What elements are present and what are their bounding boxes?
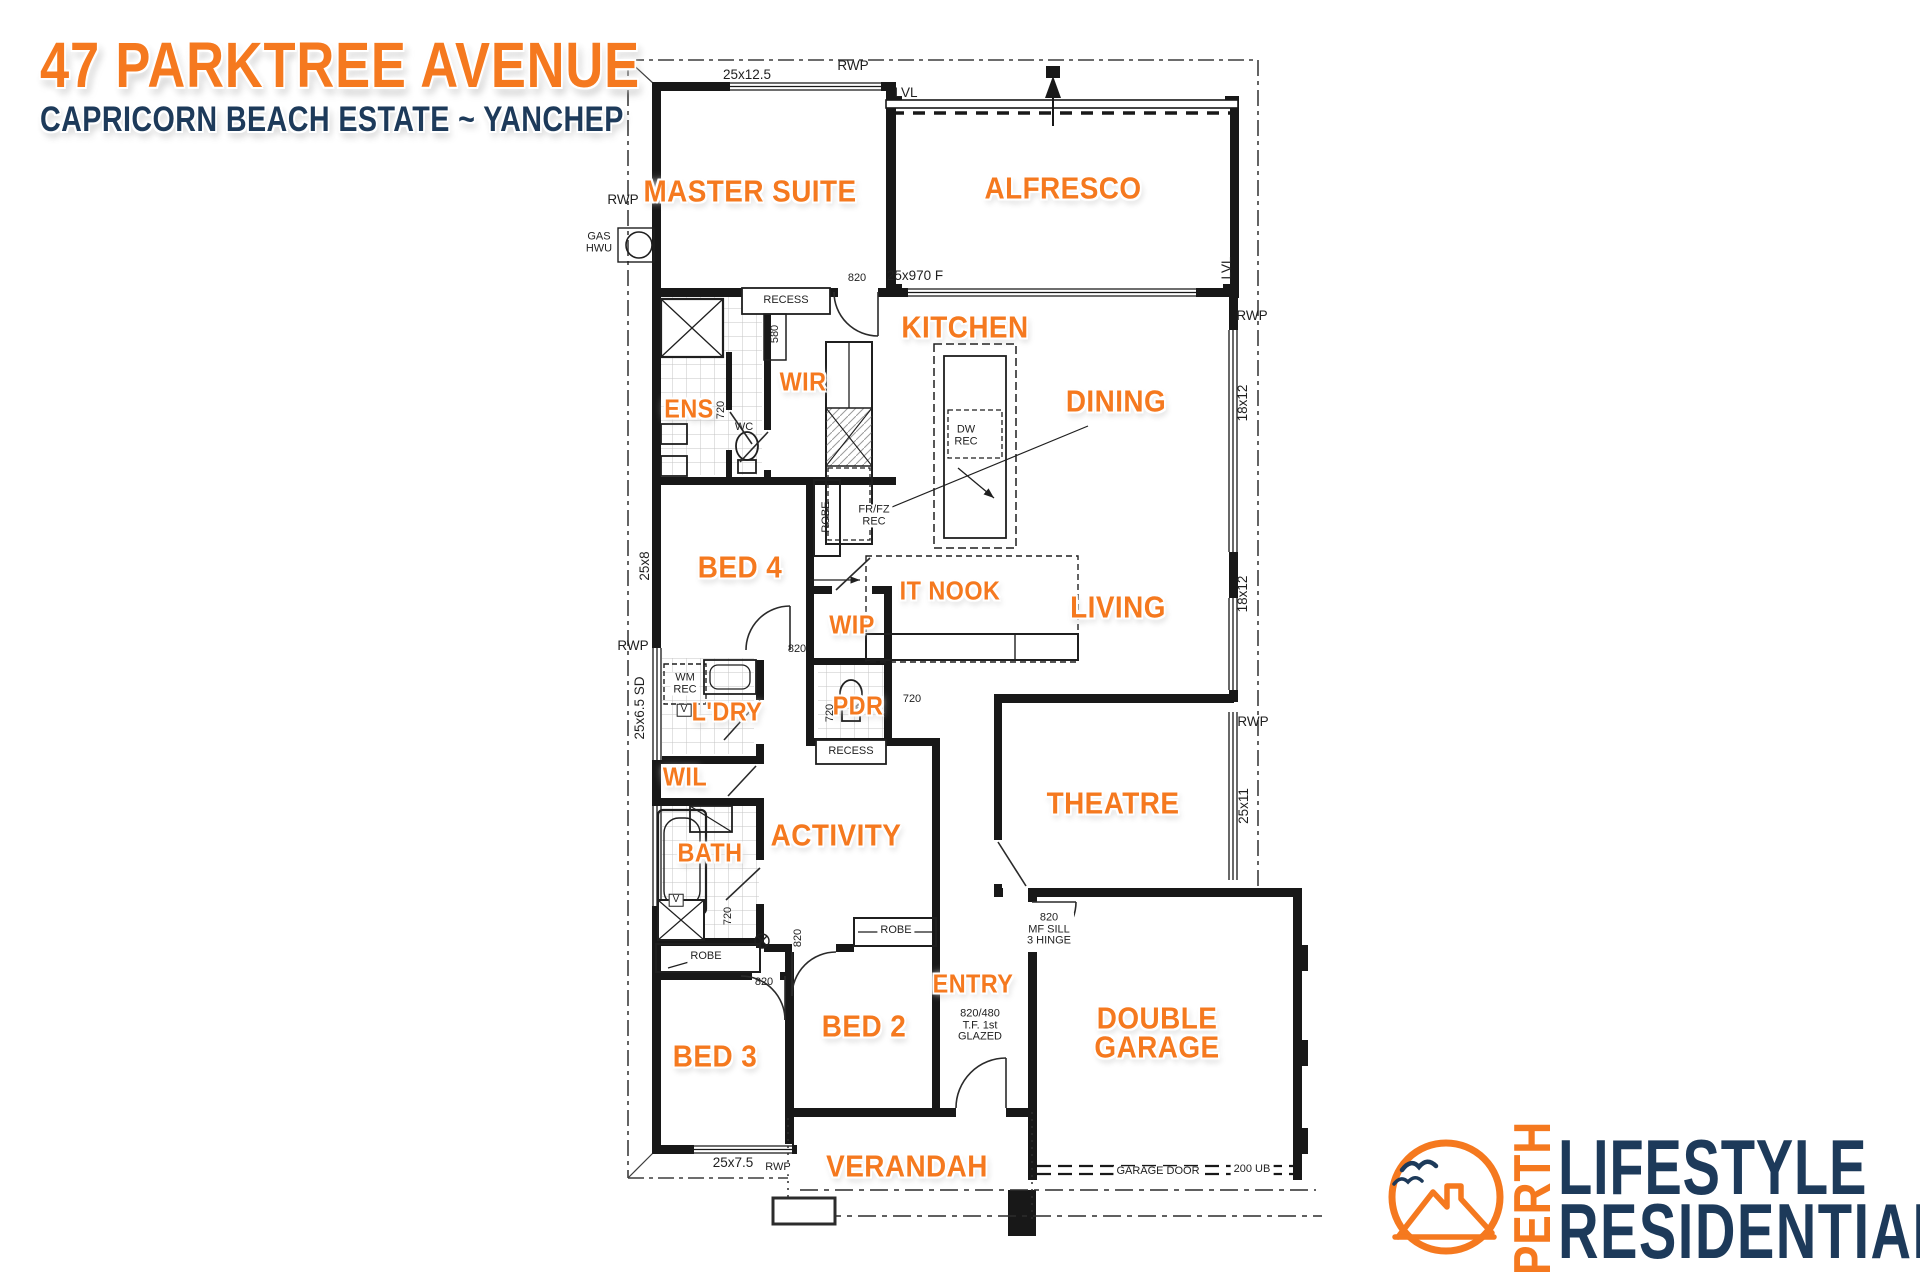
plan-annotation-rwp: RWP — [762, 1162, 793, 1174]
room-label-it-nook: IT NOOK — [900, 579, 1001, 604]
plan-annotation-25x12-5: 25x12.5 — [723, 68, 771, 82]
page-subtitle: CAPRICORN BEACH ESTATE ~ YANCHEP — [40, 100, 624, 140]
room-label-activity: ACTIVITY — [771, 820, 902, 849]
room-label-theatre: THEATRE — [1047, 788, 1180, 817]
room-label-master-suite: MASTER SUITE — [643, 176, 856, 205]
plan-annotation-25x7-5: 25x7.5 — [713, 1156, 754, 1170]
plan-annotation-robe: ROBE — [687, 951, 724, 963]
floorplan-canvas: MASTER SUITEALFRESCOKITCHENENSWIRDININGB… — [0, 0, 1920, 1281]
room-label-ldry: L'DRY — [692, 700, 763, 725]
floorplan-drawing — [0, 0, 1920, 1281]
plan-annotation-580: 580 — [770, 325, 782, 343]
bird-icon — [1394, 1178, 1422, 1184]
plan-annotation-dw-rec: DW REC — [951, 424, 980, 447]
plan-annotation-820: 820 — [788, 644, 806, 656]
room-label-living: LIVING — [1070, 592, 1166, 621]
plan-annotation-recess: RECESS — [760, 295, 811, 307]
plan-annotation-720: 720 — [723, 907, 735, 925]
plan-annotation-820-mf-sill-3-hinge: 820 MF SILL 3 HINGE — [1024, 913, 1074, 948]
plan-annotation-820: 820 — [848, 273, 866, 285]
plan-annotation-18x12: 18x12 — [1236, 385, 1250, 422]
room-label-entry: ENTRY — [933, 972, 1014, 997]
room-label-pdr: PDR — [833, 694, 884, 719]
plan-annotation-25x970-f: 25x970 F — [887, 269, 943, 283]
plan-annotation-lvl: LVL — [1220, 256, 1234, 279]
plan-annotation-820-480-t-f-1st-glazed: 820/480 T.F. 1st GLAZED — [958, 1009, 1002, 1044]
north-arrow — [1045, 66, 1061, 126]
plan-annotation-rwp: RWP — [607, 193, 638, 207]
plan-annotation-robe: ROBE — [877, 925, 914, 937]
plan-annotation-rwp: RWP — [837, 59, 868, 73]
room-label-dining: DINING — [1066, 386, 1166, 415]
room-label-bed-2: BED 2 — [822, 1011, 906, 1040]
plan-annotation-25x8: 25x8 — [638, 551, 652, 580]
room-label-alfresco: ALFRESCO — [984, 173, 1141, 202]
plan-annotation-720: 720 — [903, 694, 921, 706]
plan-annotation-robe: ROBE — [821, 501, 833, 532]
room-label-bed-3: BED 3 — [673, 1041, 757, 1070]
room-label-bed-4: BED 4 — [698, 552, 782, 581]
plan-annotation-rwp: RWP — [1237, 715, 1268, 729]
plan-annotation-720: 720 — [716, 401, 728, 419]
page-title: 47 PARKTREE AVENUE — [40, 28, 640, 102]
room-label-wip: WIP — [829, 613, 875, 638]
room-label-verandah: VERANDAH — [826, 1151, 988, 1180]
room-label-wil: WIL — [663, 765, 707, 790]
plan-annotation-25x6-5-sd: 25x6.5 SD — [633, 676, 647, 739]
plan-annotation-rwp: RWP — [617, 639, 648, 653]
logo-mark — [1392, 1143, 1500, 1251]
plan-annotation-gas-hwu: GAS HWU — [586, 231, 612, 254]
logo-city-text: PERTH — [1507, 1121, 1559, 1275]
plan-annotation-rwp: RWP — [1236, 309, 1267, 323]
logo-word-residential: RESIDENTIAL — [1558, 1192, 1920, 1270]
plan-annotation-25x11: 25x11 — [1237, 788, 1251, 824]
plan-annotation-v: V — [677, 704, 692, 717]
room-label-wir: WIR — [780, 370, 827, 395]
plan-annotation-720: 720 — [825, 704, 837, 722]
room-label-kitchen: KITCHEN — [901, 312, 1028, 341]
bird-icon — [1402, 1162, 1436, 1170]
plan-annotation-820: 820 — [793, 929, 805, 947]
room-label-ens: ENS — [664, 397, 713, 422]
plan-annotation-wc: WC — [735, 422, 753, 434]
plan-annotation-820: 820 — [755, 977, 773, 989]
plan-annotation-200-ub: 200 UB — [1231, 1164, 1274, 1176]
room-label-bath: BATH — [677, 841, 742, 866]
plan-annotation-lvl: LVL — [894, 86, 917, 100]
plan-annotation-recess: RECESS — [825, 746, 876, 758]
plan-annotation-18x12: 18x12 — [1236, 576, 1250, 613]
plan-annotation-fr-fz-rec: FR/FZ REC — [855, 504, 892, 527]
room-label-double-garage: DOUBLE GARAGE — [1094, 1004, 1219, 1063]
plan-annotation-wm-rec: WM REC — [670, 672, 699, 695]
plan-annotation-garage-door: GARAGE DOOR — [1113, 1166, 1202, 1178]
plan-annotation-v: V — [669, 894, 684, 907]
